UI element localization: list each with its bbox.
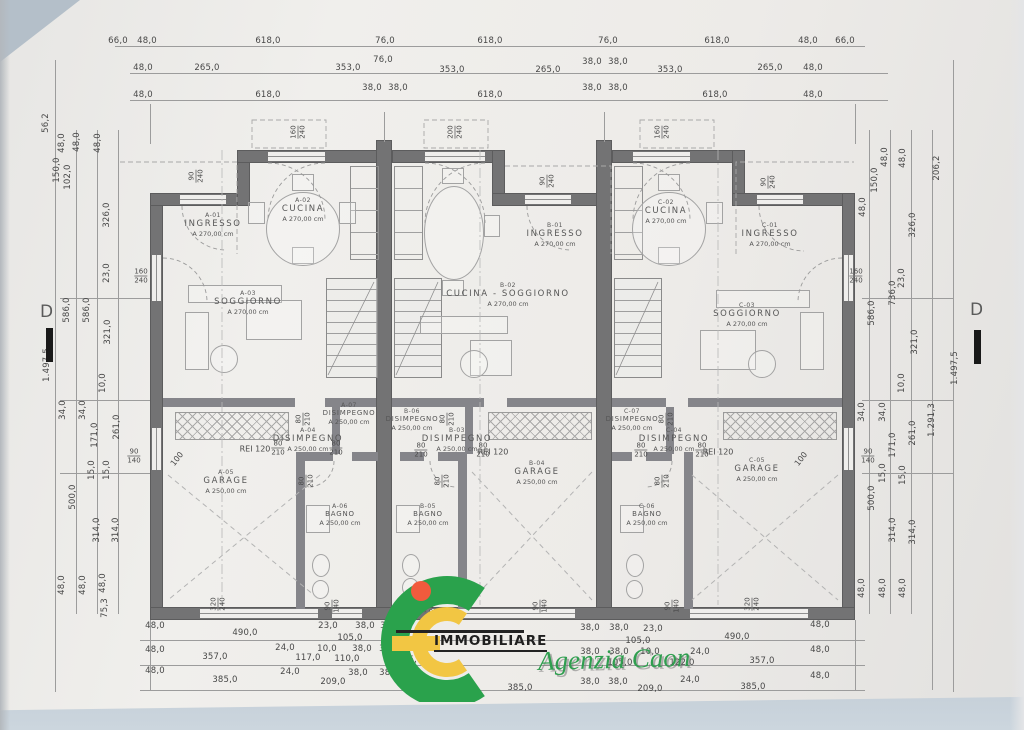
furniture [658, 174, 680, 191]
furniture-round [626, 580, 643, 599]
dimension-label: 321,0 [910, 329, 920, 354]
furniture-round [626, 554, 644, 577]
opening-size-label: 80210 [476, 442, 489, 459]
dimension-label: 48,0 [98, 573, 108, 593]
dimension-label: 76,0 [598, 36, 618, 46]
dimension-line [862, 298, 954, 299]
dimension-label: 314,0 [92, 517, 102, 542]
dimension-label: 10,0 [897, 373, 907, 393]
dimension-label: 48,0 [803, 63, 823, 73]
opening-size-label: 80210 [434, 474, 451, 487]
opening-size-label: 90240 [760, 175, 777, 188]
interior-wall [325, 398, 376, 407]
window-opening-side [844, 255, 853, 301]
dimension-label: 34,0 [857, 402, 867, 422]
porch-dashed-outlines [120, 120, 854, 254]
wall-segment [492, 150, 505, 206]
dimension-label: 326,0 [908, 212, 918, 237]
dimension-label: 48,0 [78, 575, 88, 595]
window-opening [425, 152, 485, 161]
dimension-label: 171,0 [90, 422, 100, 447]
section-marker-bar-left [46, 328, 53, 362]
interior-wall [332, 407, 340, 454]
furniture [470, 340, 512, 376]
opening-size-label: 80210 [695, 442, 708, 459]
dimension-line-vertical [76, 130, 77, 614]
dimension-label: 56,2 [41, 113, 51, 133]
room-label: A-01INGRESSOA 270,00 cm [184, 212, 241, 238]
staircase [394, 278, 442, 378]
dimension-label: 265,0 [535, 65, 560, 75]
dimension-line [60, 473, 150, 474]
opening-size-label: 80210 [654, 474, 671, 487]
dimension-line-vertical [604, 112, 605, 142]
opening-size-label: 160240 [290, 125, 307, 138]
photo-right-shadow [1010, 0, 1024, 730]
wall-segment [150, 193, 163, 620]
opening-size-label: 90240 [539, 174, 556, 187]
room-label: C-04DISIMPEGNOA 250,00 cm [639, 427, 709, 453]
dimension-label: 586,0 [82, 297, 92, 322]
wall-segment [392, 150, 504, 163]
section-marker-bar-right [974, 330, 981, 364]
interior-wall [352, 452, 378, 461]
furniture [658, 247, 680, 264]
dimension-label: 38,0 [582, 57, 602, 67]
room-label: A-04DISIMPEGNOA 250,00 cm [273, 427, 343, 453]
wall-segment [596, 140, 612, 620]
dimension-line [115, 46, 865, 47]
room-label: A-05GARAGEA 250,00 cm [203, 469, 248, 495]
window-opening [633, 152, 690, 161]
dimension-label: 48,0 [145, 645, 165, 655]
wall-segment [492, 193, 612, 206]
dimension-label: 321,0 [103, 319, 113, 344]
dimension-line [60, 400, 150, 401]
room-label: B-05BAGNOA 250,00 cm [407, 503, 448, 527]
interior-wall [392, 398, 484, 407]
dimension-label: 48,0 [898, 148, 908, 168]
dimension-line-vertical [911, 130, 912, 614]
dimension-label: 117,0 [295, 653, 320, 663]
furniture-round [424, 186, 484, 280]
stair-run-lines [328, 282, 658, 375]
wall-segment [237, 150, 250, 206]
interior-wall [688, 398, 842, 407]
annotation-label: REI 120 [240, 445, 271, 454]
furniture [292, 174, 314, 191]
furniture-round [266, 192, 340, 266]
wall-segment [732, 150, 745, 206]
furniture [442, 168, 464, 184]
window-opening-side [152, 428, 161, 470]
photo-left-shadow [0, 0, 10, 730]
room-label: C-07DISIMPEGNOA 250,00 cm [606, 408, 659, 432]
dimension-label: 48,0 [57, 575, 67, 595]
dimension-label: 38,0 [608, 57, 628, 67]
room-label: C-03SOGGIORNOA 270,00 cm [713, 302, 781, 328]
dimension-label: 24,0 [690, 647, 710, 657]
opening-size-label: 80210 [439, 412, 456, 425]
opening-size-label: 90140 [324, 599, 341, 612]
dimension-label: 314,0 [888, 517, 898, 542]
opening-size-label: 90140 [861, 448, 874, 465]
dimension-label: 76,0 [373, 55, 393, 65]
dimension-label: 171,0 [888, 432, 898, 457]
wall-segment [376, 140, 392, 620]
dimension-label: 76,0 [375, 36, 395, 46]
furniture [188, 285, 282, 303]
wall-segment [237, 150, 385, 163]
window-opening [757, 195, 803, 204]
interior-wall [646, 452, 672, 461]
room-label: A-02CUCINAA 270,00 cm [282, 197, 324, 223]
section-marker-d-left: D [40, 302, 53, 322]
furniture [185, 312, 209, 370]
dimension-label: 618,0 [702, 90, 727, 100]
dimension-label: 48,0 [803, 90, 823, 100]
furniture-round [312, 580, 329, 599]
agency-logo-mark [352, 552, 552, 702]
dimension-label: 618,0 [255, 90, 280, 100]
room-label: C-05GARAGEA 250,00 cm [734, 457, 779, 483]
dimension-label: 586,0 [867, 300, 877, 325]
dimension-label: 23,0 [643, 624, 663, 634]
opening-size-label: 80210 [295, 412, 312, 425]
dimension-label: 48,0 [798, 36, 818, 46]
furniture [420, 316, 508, 334]
window-opening [180, 195, 226, 204]
fire-beam-hatch [175, 412, 289, 440]
dimension-label: 1.497,5 [950, 351, 960, 385]
dimension-label: 48,0 [133, 90, 153, 100]
window-opening [525, 195, 571, 204]
dimension-line-vertical [932, 130, 933, 690]
room-label: B-06DISIMPEGNOA 250,00 cm [386, 408, 439, 432]
dimension-label: 48,0 [878, 578, 888, 598]
dimension-label: 75,3 [100, 598, 110, 618]
opening-size-label: 160240 [134, 268, 147, 285]
furniture [246, 300, 302, 340]
dimension-label: 24,0 [680, 675, 700, 685]
opening-size-label: 160240 [849, 268, 862, 285]
dimension-label: 38,0 [608, 83, 628, 93]
paper-sheet: 66,048,0618,076,0618,076,0618,048,066,04… [0, 0, 1024, 730]
dimension-line-vertical [869, 130, 870, 614]
room-label: A-07DISIMPEGNOA 250,00 cm [323, 402, 376, 426]
dimension-line-vertical [118, 130, 119, 614]
room-label: C-01INGRESSOA 270,00 cm [741, 222, 798, 248]
window-opening [200, 609, 318, 618]
opening-size-label: 320240 [210, 597, 227, 610]
furniture [700, 330, 756, 370]
dimension-label: 38,0 [609, 623, 629, 633]
dimension-label: 150,0 [52, 157, 62, 182]
dimension-label: 150,0 [870, 167, 880, 192]
furniture [248, 202, 265, 224]
fire-beam-hatch [488, 412, 592, 440]
dimension-label: 265,0 [194, 63, 219, 73]
furniture [442, 280, 464, 296]
dimension-label: 66,0 [108, 36, 128, 46]
furniture [292, 247, 314, 264]
kitchen-counter [614, 166, 643, 260]
dimension-label: 48,0 [810, 620, 830, 630]
dimension-line-vertical [953, 60, 954, 692]
opening-size-label: 80210 [634, 442, 647, 459]
fire-beam-hatch [723, 412, 837, 440]
dimension-label: 48,0 [133, 63, 153, 73]
wall-segment [150, 193, 250, 206]
dimension-label: 490,0 [232, 628, 257, 638]
dimension-label: 314,0 [908, 519, 918, 544]
dimension-label: 618,0 [704, 36, 729, 46]
dimension-label: 48,0 [145, 666, 165, 676]
interior-wall [296, 452, 305, 609]
dimension-line-vertical [890, 130, 891, 614]
dimension-line [130, 73, 888, 74]
interior-wall [666, 407, 674, 454]
window-opening [758, 609, 788, 618]
room-label: C-06BAGNOA 250,00 cm [626, 503, 667, 527]
centerline-dashdot [222, 150, 718, 605]
dimension-label: 48,0 [93, 133, 103, 153]
dimension-label: 261,0 [112, 414, 122, 439]
interior-wall [400, 452, 424, 461]
dimension-label: 618,0 [477, 90, 502, 100]
furniture [716, 290, 810, 308]
dimension-label: 38,0 [580, 677, 600, 687]
dimension-label: 357,0 [202, 652, 227, 662]
window-opening-side [152, 255, 161, 301]
interior-wall [507, 398, 596, 407]
room-label: A-06BAGNOA 250,00 cm [319, 503, 360, 527]
dimension-label: 618,0 [477, 36, 502, 46]
dimension-label: 15,0 [102, 460, 112, 480]
dimension-label: 23,0 [897, 268, 907, 288]
annotation-label: REI 120 [703, 448, 734, 457]
dimension-label: 48,0 [810, 645, 830, 655]
interior-wall [163, 398, 295, 407]
dimension-line-vertical [855, 620, 856, 690]
annotation-label: 100 [793, 450, 810, 468]
dimension-label: 261,0 [908, 420, 918, 445]
annotation-label: REI 120 [478, 448, 509, 457]
agency-watermark-text: Agenzia Caon [538, 642, 691, 677]
opening-size-label: 80210 [658, 412, 675, 425]
staircase [614, 278, 662, 378]
window-opening [268, 152, 325, 161]
dimension-label: 353,0 [657, 65, 682, 75]
dimension-line [130, 100, 888, 101]
dimension-label: 209,0 [637, 684, 662, 694]
opening-size-label: 80210 [271, 440, 284, 457]
wall-segment [842, 193, 855, 620]
dimension-label: 38,0 [388, 83, 408, 93]
interior-wall [438, 452, 460, 461]
dimension-label: 48,0 [57, 133, 67, 153]
dimension-label: 10,0 [98, 373, 108, 393]
dimension-label: 48,0 [898, 578, 908, 598]
annotation-label: 100 [169, 450, 186, 468]
furniture [396, 505, 420, 533]
dimension-label: 48,0 [880, 147, 890, 167]
dimension-label: 34,0 [878, 402, 888, 422]
dimension-line-vertical [55, 60, 56, 692]
wall-segment [732, 193, 855, 206]
dimension-label: 265,0 [757, 63, 782, 73]
dimension-label: 24,0 [280, 667, 300, 677]
dimension-label: 23,0 [318, 621, 338, 631]
opening-size-label: 90240 [188, 169, 205, 182]
furniture-round [210, 345, 238, 373]
room-label: B-04GARAGEA 250,00 cm [514, 460, 559, 486]
dimension-label: 34,0 [58, 400, 68, 420]
agency-logo: IMMOBILIARE [352, 552, 552, 702]
dimension-label: 618,0 [255, 36, 280, 46]
opening-size-label: 80210 [329, 440, 342, 457]
opening-size-label: 90140 [664, 599, 681, 612]
furniture [706, 202, 723, 224]
dimension-label: 48,0 [858, 197, 868, 217]
dimension-label: 385,0 [212, 675, 237, 685]
dimension-label: 38,0 [580, 623, 600, 633]
dimension-label: 314,0 [111, 517, 121, 542]
dimension-label: 500,0 [68, 484, 78, 509]
dimension-label: 1.291,3 [927, 403, 937, 437]
dimension-label: 357,0 [749, 656, 774, 666]
kitchen-counter [350, 166, 379, 260]
staircase [326, 278, 378, 378]
room-label: A-03SOGGIORNOA 270,00 cm [214, 290, 282, 316]
dimension-line-vertical [384, 112, 385, 142]
furniture [306, 505, 330, 533]
dimension-label: 209,0 [320, 677, 345, 687]
window-opening [690, 609, 808, 618]
dimension-line [862, 473, 954, 474]
dimension-label: 10,0 [317, 644, 337, 654]
dimension-label: 15,0 [87, 460, 97, 480]
dimension-line-vertical [150, 104, 151, 144]
furniture-round [632, 192, 706, 266]
opening-size-label: 80210 [298, 474, 315, 487]
dimension-label: 66,0 [835, 36, 855, 46]
opening-size-label: 90140 [127, 448, 140, 465]
logo-yellow-band [392, 636, 440, 651]
dimension-label: 38,0 [608, 677, 628, 687]
dimension-label: 102,0 [63, 164, 73, 189]
opening-size-label: 320240 [744, 597, 761, 610]
furniture [620, 505, 644, 533]
room-label: B-02CUCINA - SOGGIORNOA 270,00 cm [446, 282, 569, 308]
dimension-line-vertical [97, 130, 98, 614]
dimension-label: 586,0 [62, 297, 72, 322]
furniture [484, 215, 500, 237]
dimension-label: 15,0 [898, 465, 908, 485]
interior-wall [684, 452, 693, 609]
scanned-floorplan-photo: 66,048,0618,076,0618,076,0618,048,066,04… [0, 0, 1024, 730]
interior-wall [305, 452, 333, 461]
dimension-line-vertical [855, 104, 856, 144]
furniture [339, 202, 356, 224]
logo-brand-text: IMMOBILIARE [434, 633, 547, 652]
dimension-line-vertical [150, 620, 151, 690]
dimension-label: 353,0 [335, 63, 360, 73]
opening-size-label: 160240 [654, 125, 671, 138]
dimension-label: 34,0 [78, 400, 88, 420]
room-label: B-01INGRESSOA 270,00 cm [526, 222, 583, 248]
dimension-label: 206,2 [932, 155, 942, 180]
dimension-label: 353,0 [439, 65, 464, 75]
kitchen-counter [394, 166, 423, 260]
room-label: B-03DISIMPEGNOA 250,00 cm [422, 427, 492, 453]
furniture-round [312, 554, 330, 577]
dimension-label: 15,0 [878, 463, 888, 483]
furniture [800, 312, 824, 370]
dimension-label: 326,0 [102, 202, 112, 227]
furniture-round [748, 350, 776, 378]
dimension-label: 48,0 [72, 132, 82, 152]
window-opening-side [844, 428, 853, 470]
dimension-label: 48,0 [145, 621, 165, 631]
interior-wall [612, 452, 632, 461]
dimension-label: 490,0 [724, 632, 749, 642]
dimension-label: 500,0 [867, 485, 877, 510]
section-marker-d-right: D [970, 300, 983, 320]
furniture-round [460, 350, 488, 378]
interior-wall [465, 407, 473, 454]
dimension-line [60, 298, 150, 299]
dimension-label: 736,0 [888, 280, 898, 305]
dimension-label: 24,0 [275, 643, 295, 653]
dimension-label: 48,0 [137, 36, 157, 46]
door-swing-arcs [163, 163, 842, 487]
interior-wall [612, 398, 666, 407]
dimension-label: 385,0 [740, 682, 765, 692]
logo-red-dot [411, 581, 431, 601]
dimension-label: 48,0 [857, 578, 867, 598]
opening-size-label: 80210 [414, 442, 427, 459]
dimension-label: 48,0 [810, 671, 830, 681]
dimension-label: 38,0 [362, 83, 382, 93]
dimension-line [862, 400, 954, 401]
dimension-label: 23,0 [102, 263, 112, 283]
room-label: C-02CUCINAA 270,00 cm [645, 199, 687, 225]
opening-size-label: 200240 [447, 125, 464, 138]
dimension-label: 38,0 [582, 83, 602, 93]
wall-segment [612, 150, 745, 163]
